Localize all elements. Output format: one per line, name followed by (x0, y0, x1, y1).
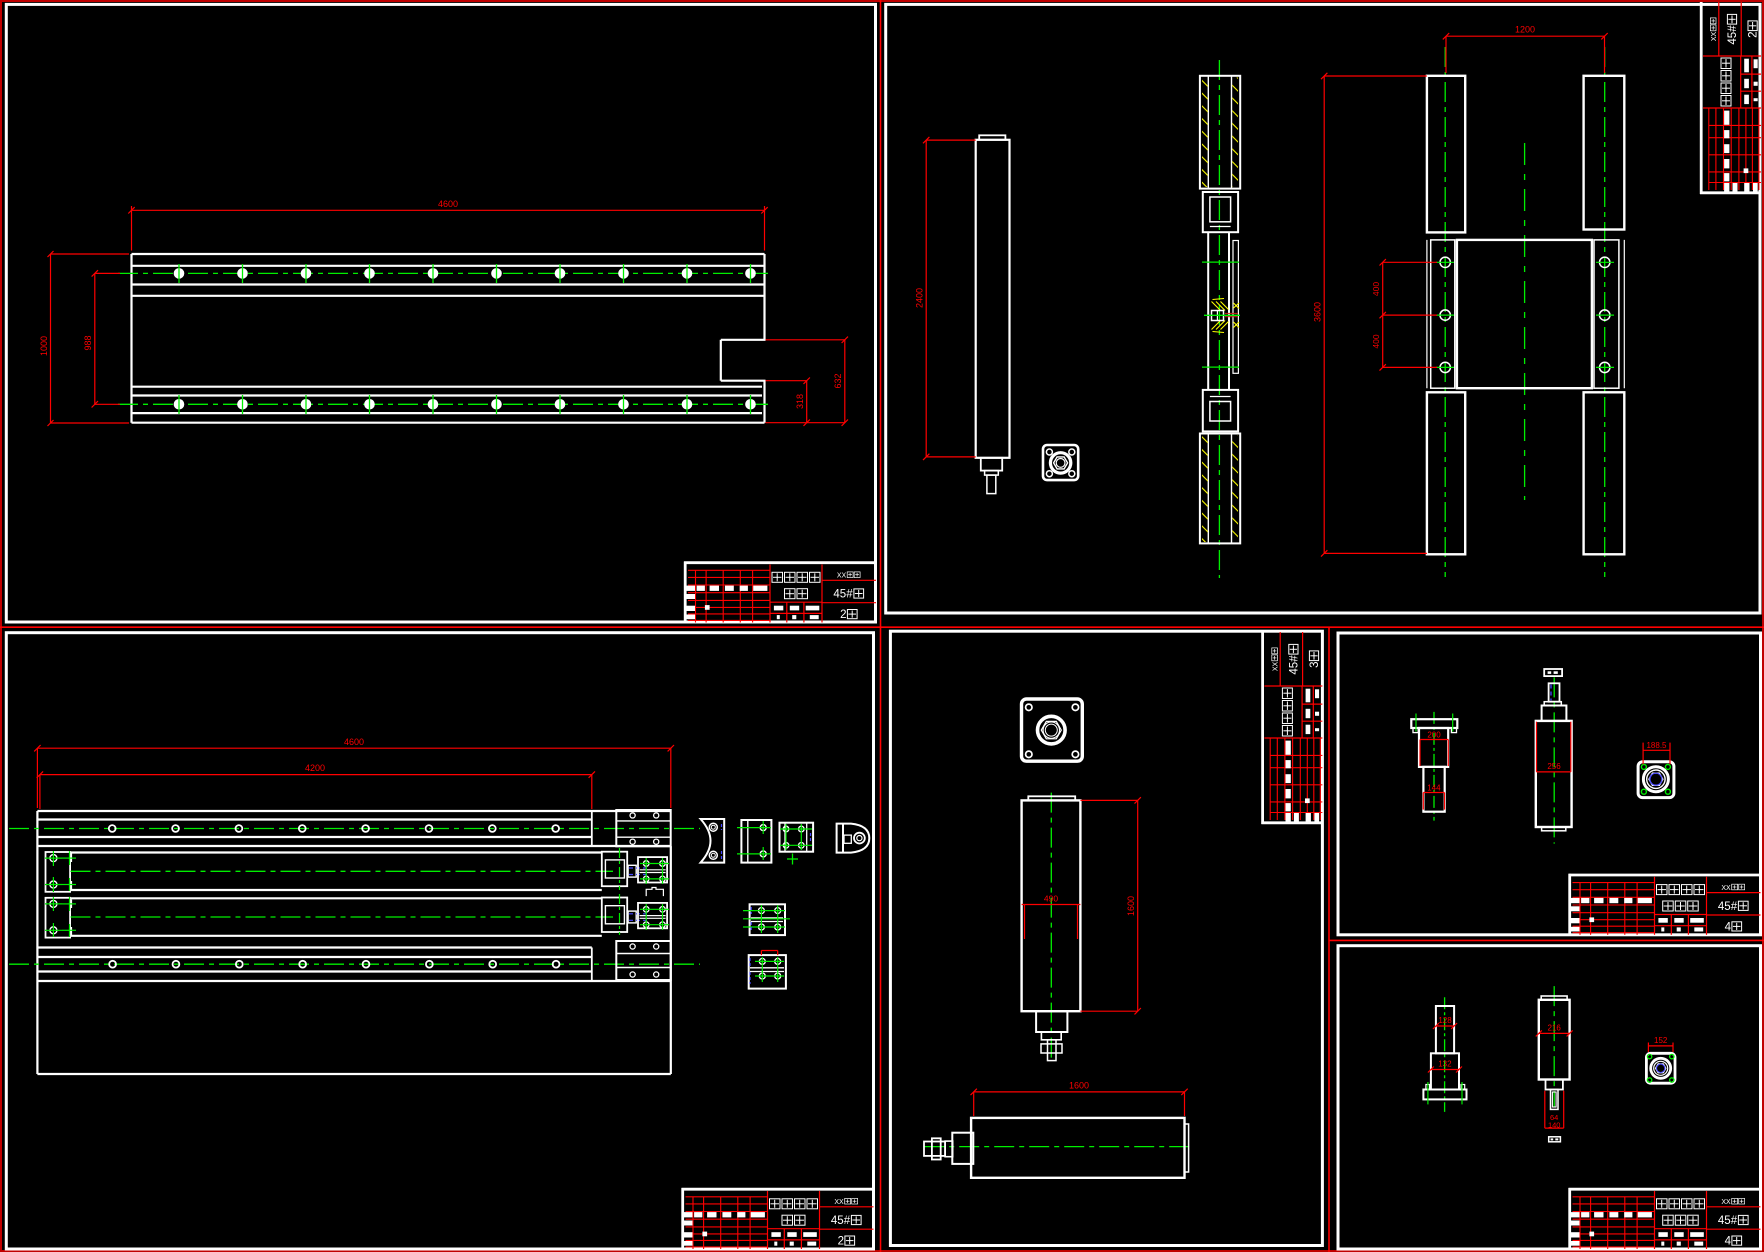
svg-text:XX: XX (834, 1199, 844, 1206)
svg-text:132: 132 (1438, 1060, 1452, 1069)
svg-text:152: 152 (1654, 1036, 1668, 1045)
svg-text:4: 4 (1725, 1236, 1732, 1248)
svg-text:1600: 1600 (1126, 896, 1136, 916)
svg-text:318: 318 (795, 394, 805, 409)
svg-text:45#: 45# (1718, 901, 1738, 913)
svg-text:400: 400 (1371, 334, 1381, 348)
svg-text:XX: XX (837, 573, 847, 580)
svg-text:45#: 45# (833, 589, 853, 601)
svg-text:216: 216 (1548, 1023, 1562, 1032)
svg-text:2400: 2400 (915, 288, 925, 308)
svg-text:3600: 3600 (1313, 302, 1323, 322)
svg-text:1200: 1200 (1515, 25, 1535, 35)
svg-text:XX: XX (1721, 885, 1731, 892)
svg-text:632: 632 (833, 373, 843, 388)
svg-text:256: 256 (1547, 762, 1561, 771)
svg-text:XX: XX (1272, 662, 1279, 672)
svg-text:2: 2 (1748, 31, 1760, 37)
svg-text:4600: 4600 (438, 199, 458, 209)
svg-text:200: 200 (1427, 731, 1441, 740)
svg-text:988: 988 (83, 335, 93, 350)
svg-text:45#: 45# (1718, 1215, 1738, 1227)
svg-text:1000: 1000 (39, 336, 49, 356)
svg-text:188.5: 188.5 (1646, 741, 1667, 750)
svg-text:4600: 4600 (344, 737, 364, 747)
svg-text:2: 2 (840, 609, 846, 621)
svg-text:128: 128 (1438, 1016, 1452, 1025)
svg-text:1600: 1600 (1069, 1081, 1089, 1091)
svg-text:4200: 4200 (305, 763, 325, 773)
svg-text:140: 140 (1548, 1121, 1561, 1130)
svg-text:XX: XX (1721, 1199, 1731, 1206)
svg-text:45#: 45# (1288, 655, 1300, 675)
svg-text:4: 4 (1725, 921, 1732, 933)
svg-text:45#: 45# (1727, 25, 1739, 45)
svg-text:3: 3 (1309, 661, 1321, 667)
svg-text:45#: 45# (831, 1215, 851, 1227)
svg-text:2: 2 (838, 1236, 844, 1248)
svg-text:144: 144 (1427, 784, 1441, 793)
svg-text:XX: XX (1711, 32, 1718, 42)
svg-text:490: 490 (1044, 894, 1058, 904)
svg-text:400: 400 (1371, 282, 1381, 296)
